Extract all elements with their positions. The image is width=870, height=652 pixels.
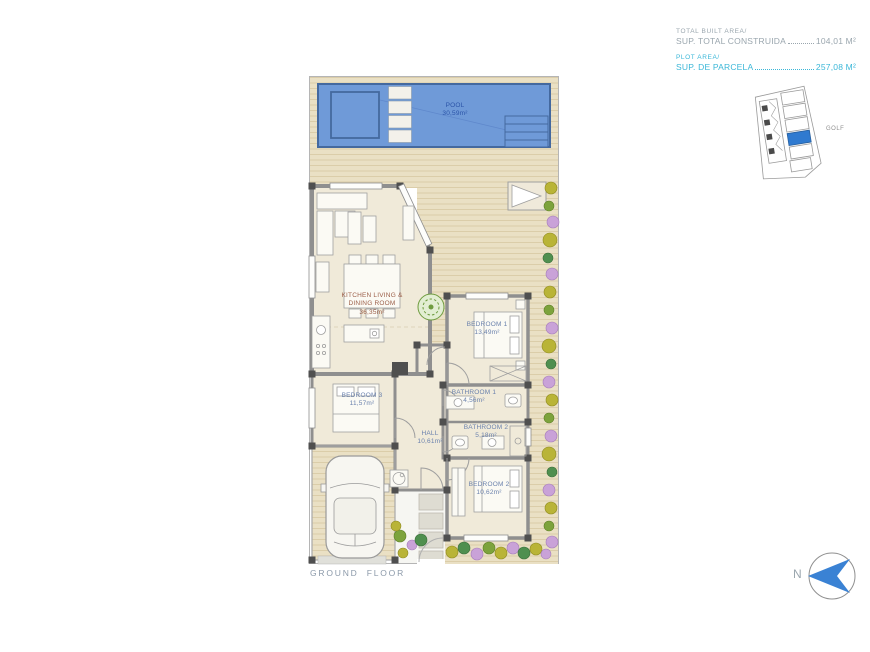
floorplan-page: POOL 30,59m² KITCHEN LIVING & DINING ROO… [0, 0, 870, 652]
patio-plant [418, 294, 444, 320]
north-compass [806, 550, 858, 602]
built-area-label: TOTAL BUILT AREA/ [676, 28, 856, 35]
room-label-bedroom-3: BEDROOM 3 11,57m² [322, 392, 402, 409]
bathroom-1-name: BATHROOM 1 [436, 389, 512, 397]
car [321, 456, 389, 558]
floorplan-drawing [0, 0, 870, 652]
kitchen-living-name: KITCHEN LIVING & DINING ROOM [339, 292, 405, 309]
bedroom-2-area: 10,62m² [449, 489, 529, 497]
side-gate [508, 182, 546, 210]
room-label-pool: POOL 30,59m² [415, 102, 495, 119]
pool-spa [331, 92, 379, 138]
tv-unit [403, 206, 414, 240]
sofa [317, 193, 367, 209]
bedroom-2-name: BEDROOM 2 [449, 481, 529, 489]
site-location-map [744, 85, 826, 187]
room-label-hall: HALL 10,61m² [398, 430, 462, 447]
room-label-bedroom-1: BEDROOM 1 13,49m² [447, 321, 527, 338]
bedroom-3-area: 11,57m² [322, 400, 402, 408]
room-label-bedroom-2: BEDROOM 2 10,62m² [449, 481, 529, 498]
bedroom-1-name: BEDROOM 1 [447, 321, 527, 329]
dotted-leader [788, 43, 814, 44]
pool-area: 30,59m² [415, 110, 495, 118]
golf-label: GOLF [826, 126, 844, 132]
plot-area-label: PLOT AREA/ [676, 54, 856, 61]
room-label-kitchen-living: KITCHEN LIVING & DINING ROOM 36,35m² [339, 292, 405, 317]
plot-area-name: SUP. DE PARCELA [676, 62, 753, 72]
bathroom-1-area: 4,56m² [436, 397, 512, 405]
bedroom-1-area: 13,49m² [447, 329, 527, 337]
built-area-value: 104,01 M² [816, 36, 856, 46]
bedroom-3-name: BEDROOM 3 [322, 392, 402, 400]
pool-name: POOL [415, 102, 495, 110]
plot-area-value: 257,08 M² [816, 62, 856, 72]
armchair [348, 212, 361, 244]
floor-title: GROUND FLOOR [310, 568, 405, 578]
hall-name: HALL [398, 430, 462, 438]
built-area-name: SUP. TOTAL CONSTRUIDA [676, 36, 786, 46]
kitchen-living-area: 36,35m² [339, 309, 405, 317]
pool-steps-right [505, 116, 548, 147]
chimney [392, 362, 408, 375]
north-label: N [793, 567, 802, 581]
area-info-panel: TOTAL BUILT AREA/ SUP. TOTAL CONSTRUIDA … [676, 28, 856, 72]
room-label-bathroom-1: BATHROOM 1 4,56m² [436, 389, 512, 406]
hall-area: 10,61m² [398, 438, 462, 446]
hall-utility [390, 470, 408, 487]
dotted-leader [755, 69, 814, 70]
sideboard [316, 262, 329, 292]
